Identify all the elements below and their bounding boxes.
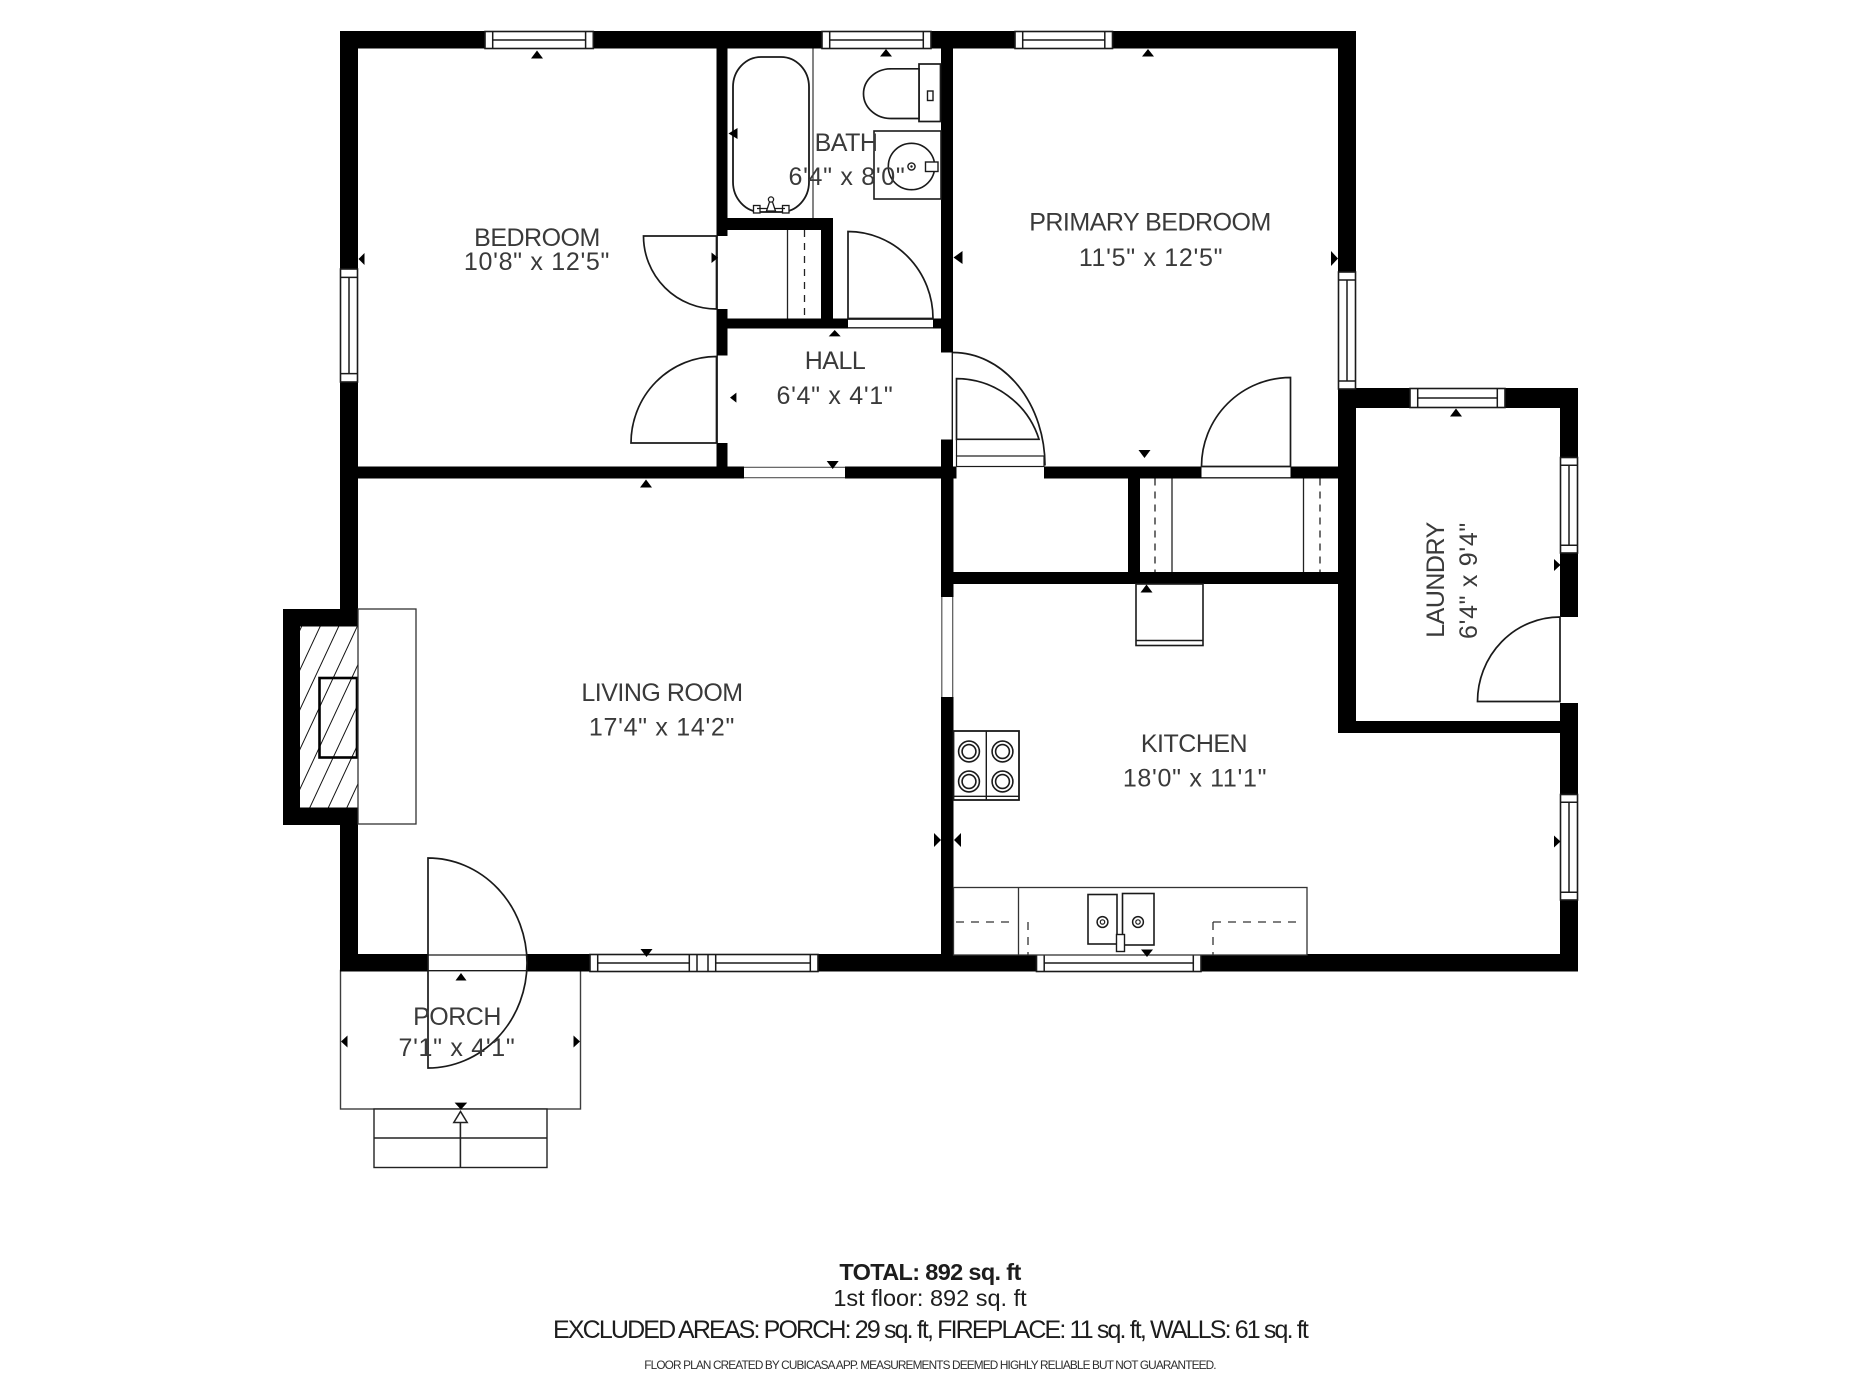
svg-text:10'8" x 12'5": 10'8" x 12'5" — [464, 248, 610, 276]
svg-text:11'5" x 12'5": 11'5" x 12'5" — [1079, 244, 1223, 272]
svg-text:7'1" x 4'1": 7'1" x 4'1" — [398, 1034, 515, 1062]
svg-text:HALL: HALL — [805, 347, 866, 375]
svg-text:6'4" x 4'1": 6'4" x 4'1" — [776, 382, 893, 410]
svg-text:EXCLUDED AREAS: PORCH: 29 sq.: EXCLUDED AREAS: PORCH: 29 sq. ft, FIREPL… — [553, 1316, 1309, 1344]
svg-text:LAUNDRY: LAUNDRY — [1422, 521, 1450, 637]
svg-text:6'4" x 9'4": 6'4" x 9'4" — [1455, 522, 1483, 639]
svg-text:FLOOR PLAN CREATED BY CUBICASA: FLOOR PLAN CREATED BY CUBICASA APP. MEAS… — [644, 1358, 1216, 1372]
svg-text:17'4" x 14'2": 17'4" x 14'2" — [589, 714, 735, 742]
svg-text:18'0" x 11'1": 18'0" x 11'1" — [1123, 765, 1267, 793]
svg-text:KITCHEN: KITCHEN — [1141, 730, 1247, 758]
svg-text:1st floor: 892 sq. ft: 1st floor: 892 sq. ft — [833, 1285, 1027, 1311]
svg-text:BATH: BATH — [815, 129, 878, 157]
svg-text:LIVING ROOM: LIVING ROOM — [581, 679, 742, 707]
svg-text:TOTAL: 892 sq. ft: TOTAL: 892 sq. ft — [839, 1259, 1021, 1285]
svg-text:PORCH: PORCH — [413, 1003, 501, 1031]
svg-text:PRIMARY BEDROOM: PRIMARY BEDROOM — [1029, 209, 1271, 237]
svg-text:6'4" x 8'0": 6'4" x 8'0" — [788, 163, 905, 191]
